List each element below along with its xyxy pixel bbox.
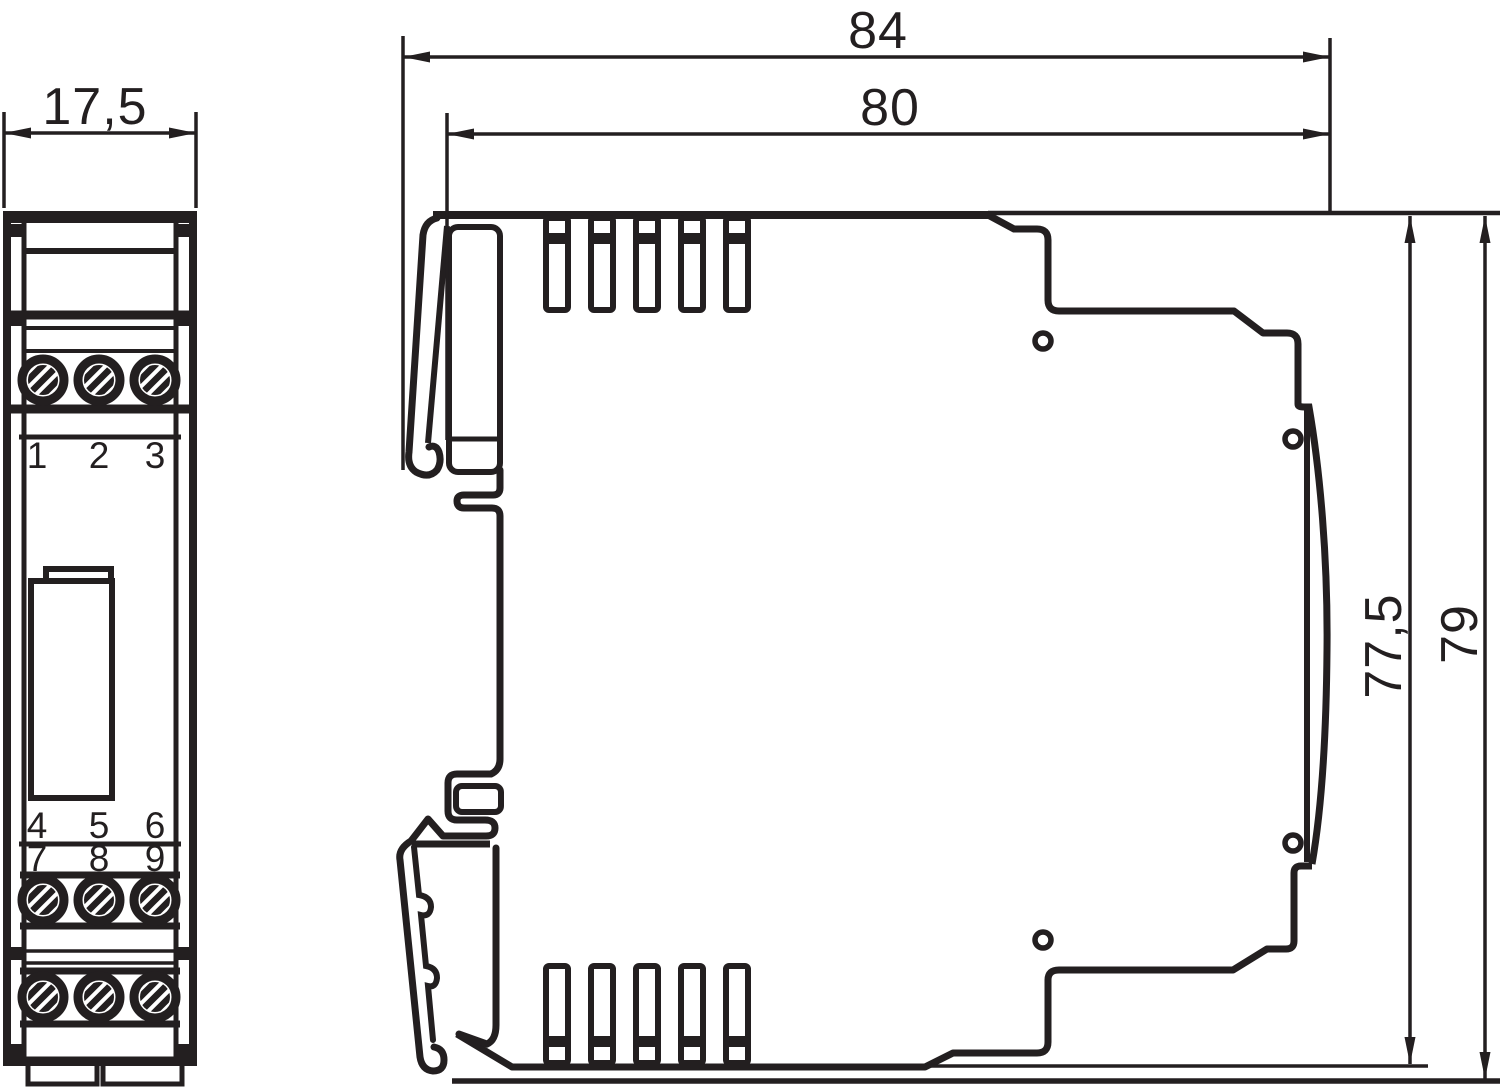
side-view: 84 80 77,5 79 [400,2,1500,1081]
width-dimension-label: 17,5 [42,78,147,136]
terminal-screws-top-row [22,359,176,401]
dimension-width-17-5: 17,5 [4,78,196,208]
arrow-left-icon [403,52,430,63]
terminal-number-1: 1 [27,435,48,476]
terminal-numbers: 1 2 3 4 5 6 7 8 9 [27,435,166,879]
terminal-number-8: 8 [89,838,110,879]
mounting-feet [28,1066,182,1084]
arrow-up-icon [1480,216,1491,243]
side-front-face-outer [1298,404,1327,864]
terminal-number-2: 2 [89,435,110,476]
terminal-number-3: 3 [145,435,166,476]
arrow-down-icon [1405,1037,1416,1064]
screw-bosses [1035,333,1301,948]
dimension-overall-depth-84: 84 [403,2,1330,470]
dimension-body-height-77-5: 77,5 [1355,216,1416,1064]
vent-slots-bottom [546,966,748,1063]
terminal-number-7: 7 [27,838,48,879]
side-back-edge [400,470,500,1071]
arrow-down-icon [1480,1052,1491,1079]
body-height-label: 77,5 [1355,593,1413,698]
technical-drawing: 1 2 3 4 5 6 7 8 9 17,5 [0,0,1500,1088]
vent-slots-top [546,218,748,310]
arrow-right-icon [1303,52,1330,63]
din-rail-latch-bottom [412,844,496,1044]
dimensional-drawing-page: 1 2 3 4 5 6 7 8 9 17,5 [0,0,1500,1088]
overall-height-label: 79 [1431,604,1489,664]
front-view: 1 2 3 4 5 6 7 8 9 17,5 [3,78,197,1084]
side-profile-top-right [988,215,1298,404]
side-profile-bottom-right [457,866,1312,1067]
body-depth-label: 80 [860,79,920,137]
arrow-right-icon [169,128,196,139]
latch-tab-window [456,786,501,812]
arrow-up-icon [1405,216,1416,243]
terminal-screws-bottom-row [22,976,176,1018]
arrow-right-icon [1303,129,1330,140]
din-rail-clip-top [409,218,500,475]
rail-clip-marks [9,224,191,1057]
overall-depth-label: 84 [848,2,908,60]
terminal-screws-middle-row [22,879,176,921]
dimension-overall-height-79: 79 [1431,216,1491,1079]
arrow-left-icon [4,128,31,139]
label-window [31,569,112,798]
terminal-number-9: 9 [145,838,166,879]
dimension-body-depth-80: 80 [447,79,1330,440]
arrow-left-icon [447,129,474,140]
